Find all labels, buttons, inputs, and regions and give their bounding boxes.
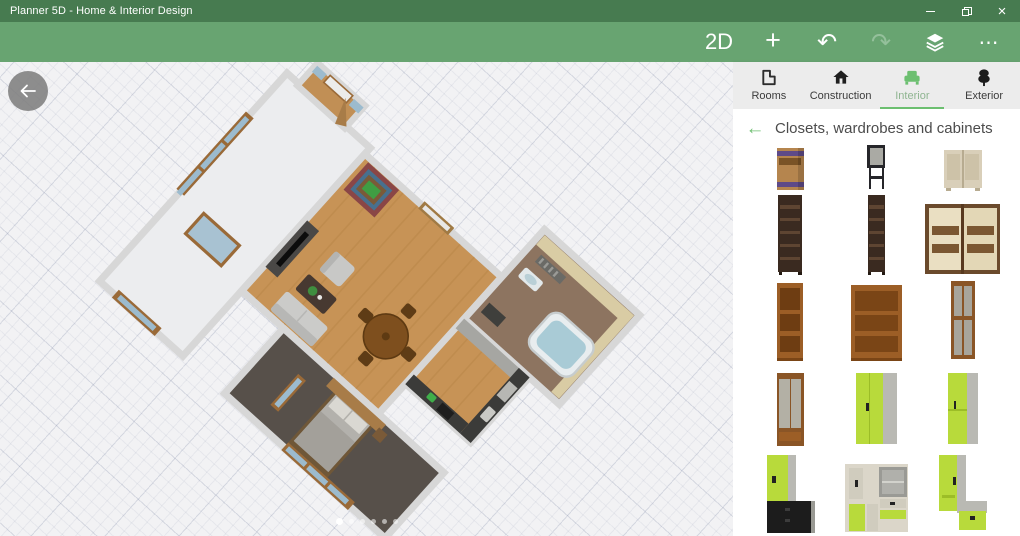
category-title: Closets, wardrobes and cabinets — [775, 120, 993, 137]
minimize-icon — [926, 11, 935, 12]
furniture-item-storage-combination[interactable] — [843, 461, 909, 535]
catalog-tabs: Rooms Construction Int — [733, 62, 1020, 109]
app-window: Planner 5D - Home & Interior Design × 2D… — [0, 0, 1020, 536]
green-gray-wardrobe-thumbnail — [854, 371, 898, 447]
furniture-item-wardrobe-frosted-doors[interactable] — [949, 281, 977, 361]
narrow-green-wardrobe-thumbnail — [946, 371, 980, 447]
green-black-storage-combo-thumbnail — [762, 455, 818, 535]
furniture-item-green-black-storage-combo[interactable] — [762, 455, 818, 535]
close-button[interactable]: × — [984, 0, 1020, 22]
catalog-panel: Rooms Construction Int — [733, 62, 1020, 536]
narrow-dark-bookcase-thumbnail — [865, 195, 887, 275]
arrow-left-icon: ← — [746, 118, 765, 139]
pagination-dot-3[interactable] — [371, 519, 376, 524]
furniture-item-green-gray-wardrobe[interactable] — [854, 371, 898, 447]
furniture-item-tall-dark-bookcase[interactable] — [774, 195, 806, 275]
tab-construction[interactable]: Construction — [805, 62, 877, 109]
furniture-item-beige-double-wardrobe[interactable] — [942, 149, 984, 191]
floorplan-3d-view — [0, 62, 733, 536]
furniture-item-narrow-green-wardrobe[interactable] — [946, 371, 980, 447]
house-icon — [831, 68, 851, 87]
more-menu-button[interactable]: ⋯ — [962, 22, 1016, 62]
mode-2d-button[interactable]: 2D — [692, 22, 746, 62]
furniture-grid — [733, 145, 1020, 536]
furniture-item-wide-brown-bookcase[interactable] — [849, 285, 903, 361]
toolbar: 2D + ↶ ↷ ⋯ — [0, 22, 1020, 62]
close-icon: × — [998, 4, 1007, 19]
layers-icon — [924, 31, 946, 53]
pagination-dot-0[interactable] — [336, 518, 343, 525]
add-item-button[interactable]: + — [746, 22, 800, 62]
floorplan-icon — [759, 68, 779, 87]
furniture-item-narrow-dark-bookcase[interactable] — [865, 195, 887, 275]
tall-dark-bookcase-thumbnail — [774, 195, 806, 275]
back-button[interactable] — [8, 71, 48, 111]
window-controls: × — [912, 0, 1020, 22]
undo-button[interactable]: ↶ — [800, 22, 854, 62]
window-title: Planner 5D - Home & Interior Design — [0, 5, 912, 17]
green-bench-storage-combo-thumbnail — [935, 455, 991, 535]
category-back-button[interactable]: ← — [741, 119, 769, 138]
minimize-button[interactable] — [912, 0, 948, 22]
brown-shelving-unit-thumbnail — [775, 283, 805, 361]
sliding-door-wardrobe-thumbnail — [924, 203, 1002, 275]
tree-icon — [974, 68, 994, 87]
pagination-dot-4[interactable] — [382, 519, 387, 524]
storage-combination-thumbnail — [843, 461, 909, 535]
cabinet-with-drawers-purple-trim-thumbnail — [773, 147, 807, 191]
furniture-item-sliding-door-wardrobe[interactable] — [924, 203, 1002, 275]
redo-icon: ↷ — [871, 28, 891, 57]
tab-interior[interactable]: Interior — [877, 62, 949, 109]
cabinet-glass-doors-thumbnail — [774, 373, 806, 447]
furniture-item-brown-shelving-unit[interactable] — [775, 283, 805, 361]
category-header: ← Closets, wardrobes and cabinets — [733, 109, 1020, 145]
furniture-item-cabinet-with-drawers-purple-trim[interactable] — [773, 147, 807, 191]
wardrobe-frosted-doors-thumbnail — [949, 281, 977, 361]
pagination-dot-2[interactable] — [360, 519, 365, 524]
pagination-dots[interactable] — [336, 518, 398, 525]
layers-button[interactable] — [908, 22, 962, 62]
furniture-item-cabinet-glass-doors[interactable] — [774, 373, 806, 447]
restore-icon — [962, 7, 970, 15]
tab-rooms[interactable]: Rooms — [733, 62, 805, 109]
arrow-left-icon — [18, 81, 38, 101]
pagination-dot-5[interactable] — [393, 519, 398, 524]
tab-exterior[interactable]: Exterior — [948, 62, 1020, 109]
armchair-icon — [902, 68, 922, 87]
beige-double-wardrobe-thumbnail — [942, 149, 984, 191]
wide-brown-bookcase-thumbnail — [849, 285, 903, 361]
pagination-dot-1[interactable] — [349, 519, 354, 524]
floorplan-canvas[interactable] — [0, 62, 733, 536]
title-bar: Planner 5D - Home & Interior Design × — [0, 0, 1020, 22]
furniture-item-green-bench-storage-combo[interactable] — [935, 455, 991, 535]
undo-icon: ↶ — [817, 28, 837, 57]
furniture-item-metal-display-cabinet[interactable] — [861, 145, 891, 191]
metal-display-cabinet-thumbnail — [861, 145, 891, 191]
restore-button[interactable] — [948, 0, 984, 22]
redo-button[interactable]: ↷ — [854, 22, 908, 62]
